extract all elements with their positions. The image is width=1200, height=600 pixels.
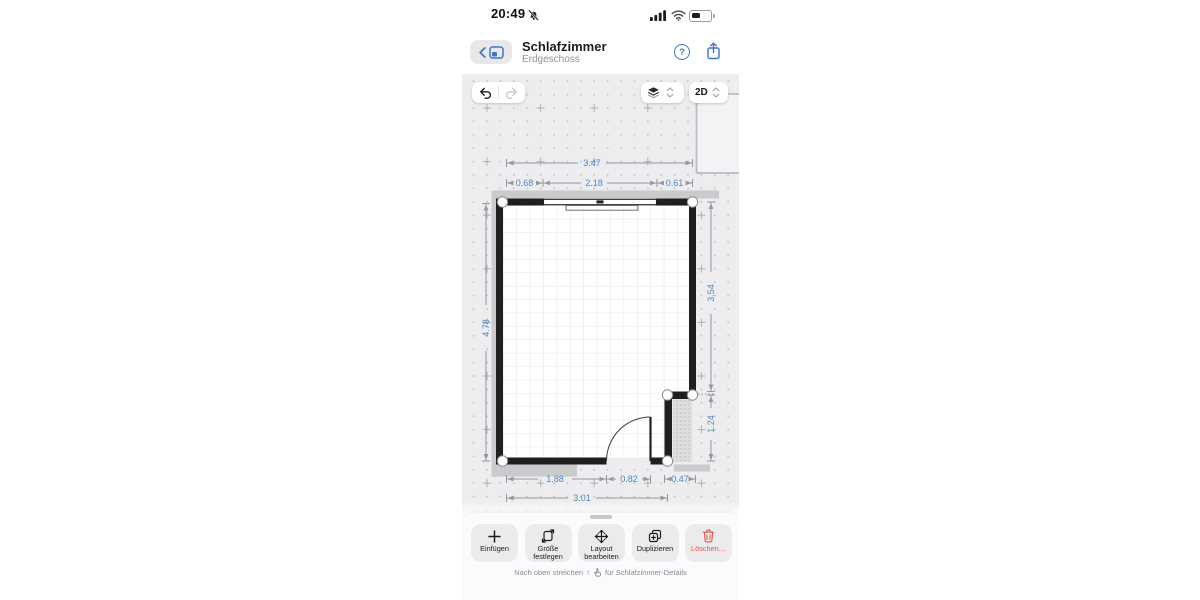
floorplan-drawing: 3.47 0.68 2.18 0.61 4.78 3.54 1.24 1.88 … xyxy=(462,74,739,513)
hint-text-suffix: für Schlafzimmer-Details xyxy=(605,568,687,577)
wall-node xyxy=(687,390,697,400)
dim-top-right: 0.61 xyxy=(666,178,684,188)
floorplan-icon xyxy=(489,46,504,59)
dim-top-left: 0.68 xyxy=(516,178,534,188)
wall-node xyxy=(497,456,507,466)
back-button[interactable] xyxy=(470,40,512,64)
set-size-button[interactable]: Größe festlegen xyxy=(525,524,572,562)
notifications-off-icon xyxy=(528,9,539,21)
share-button[interactable] xyxy=(704,40,722,62)
wall-node xyxy=(497,197,507,207)
move-icon xyxy=(594,528,609,544)
arrow-up-icon: ↑ xyxy=(586,568,590,577)
wifi-icon xyxy=(671,10,686,21)
swipe-hint: Nach oben streichen ↑ für Schlafzimmer-D… xyxy=(462,567,739,577)
layers-icon xyxy=(647,86,660,99)
title-block: Schlafzimmer Erdgeschoss xyxy=(522,39,607,65)
bottom-sheet: Einfügen Größe festlegen xyxy=(462,513,739,600)
battery-icon xyxy=(689,10,712,22)
undo-button[interactable] xyxy=(479,86,493,100)
chevron-up-down-icon xyxy=(712,87,720,98)
status-bar: 20:49 xyxy=(462,0,739,34)
pill-divider xyxy=(498,86,499,99)
view-mode-label: 2D xyxy=(695,87,708,98)
redo-button[interactable] xyxy=(504,86,518,100)
wall-node xyxy=(687,197,697,207)
plus-icon xyxy=(488,528,501,544)
phone-screen: 20:49 xyxy=(462,0,739,600)
wall-node xyxy=(662,456,672,466)
insert-button[interactable]: Einfügen xyxy=(471,524,518,562)
dim-left: 4.78 xyxy=(481,319,491,337)
delete-button[interactable]: Löschen… xyxy=(685,524,732,562)
view-mode-selector[interactable]: 2D xyxy=(689,82,728,103)
clock: 20:49 xyxy=(491,6,525,21)
help-button[interactable]: ? xyxy=(674,44,690,60)
dim-right-upper: 3.54 xyxy=(706,284,716,302)
adjacent-room-outline xyxy=(697,94,740,173)
hand-swipe-icon xyxy=(593,567,602,577)
exterior-niche-fill xyxy=(673,400,692,462)
undo-redo-group xyxy=(472,82,525,103)
dim-top-mid: 2.18 xyxy=(585,178,603,188)
level-selector[interactable] xyxy=(641,82,684,103)
chevron-up-down-icon xyxy=(666,87,674,98)
resize-icon xyxy=(541,528,555,544)
dim-top-total: 3.47 xyxy=(583,158,601,168)
question-mark-glyph: ? xyxy=(679,47,685,58)
dim-bottom-left: 1.88 xyxy=(546,474,564,484)
chevron-left-icon xyxy=(479,47,486,58)
header: Schlafzimmer Erdgeschoss ? xyxy=(462,34,739,74)
dim-bottom-total: 3.01 xyxy=(573,493,591,503)
dim-right-lower: 1.24 xyxy=(706,415,716,433)
hint-text-prefix: Nach oben streichen xyxy=(514,568,583,577)
sheet-drag-handle[interactable] xyxy=(590,515,612,519)
page-title: Schlafzimmer xyxy=(522,39,607,54)
edit-layout-button[interactable]: Layout bearbeiten xyxy=(578,524,625,562)
tool-button-row: Einfügen Größe festlegen xyxy=(471,524,732,562)
trash-icon xyxy=(702,528,715,544)
floorplan-canvas[interactable]: 3.47 0.68 2.18 0.61 4.78 3.54 1.24 1.88 … xyxy=(462,74,739,513)
dim-bottom-door: 0.82 xyxy=(620,474,638,484)
duplicate-icon xyxy=(648,528,662,544)
room-floor[interactable] xyxy=(503,206,689,458)
wall-node xyxy=(662,390,672,400)
share-icon xyxy=(706,42,721,60)
duplicate-button[interactable]: Duplizieren xyxy=(632,524,679,562)
page-subtitle: Erdgeschoss xyxy=(522,54,607,65)
cellular-signal-icon xyxy=(650,10,667,21)
dim-bottom-right: 0.47 xyxy=(671,474,689,484)
